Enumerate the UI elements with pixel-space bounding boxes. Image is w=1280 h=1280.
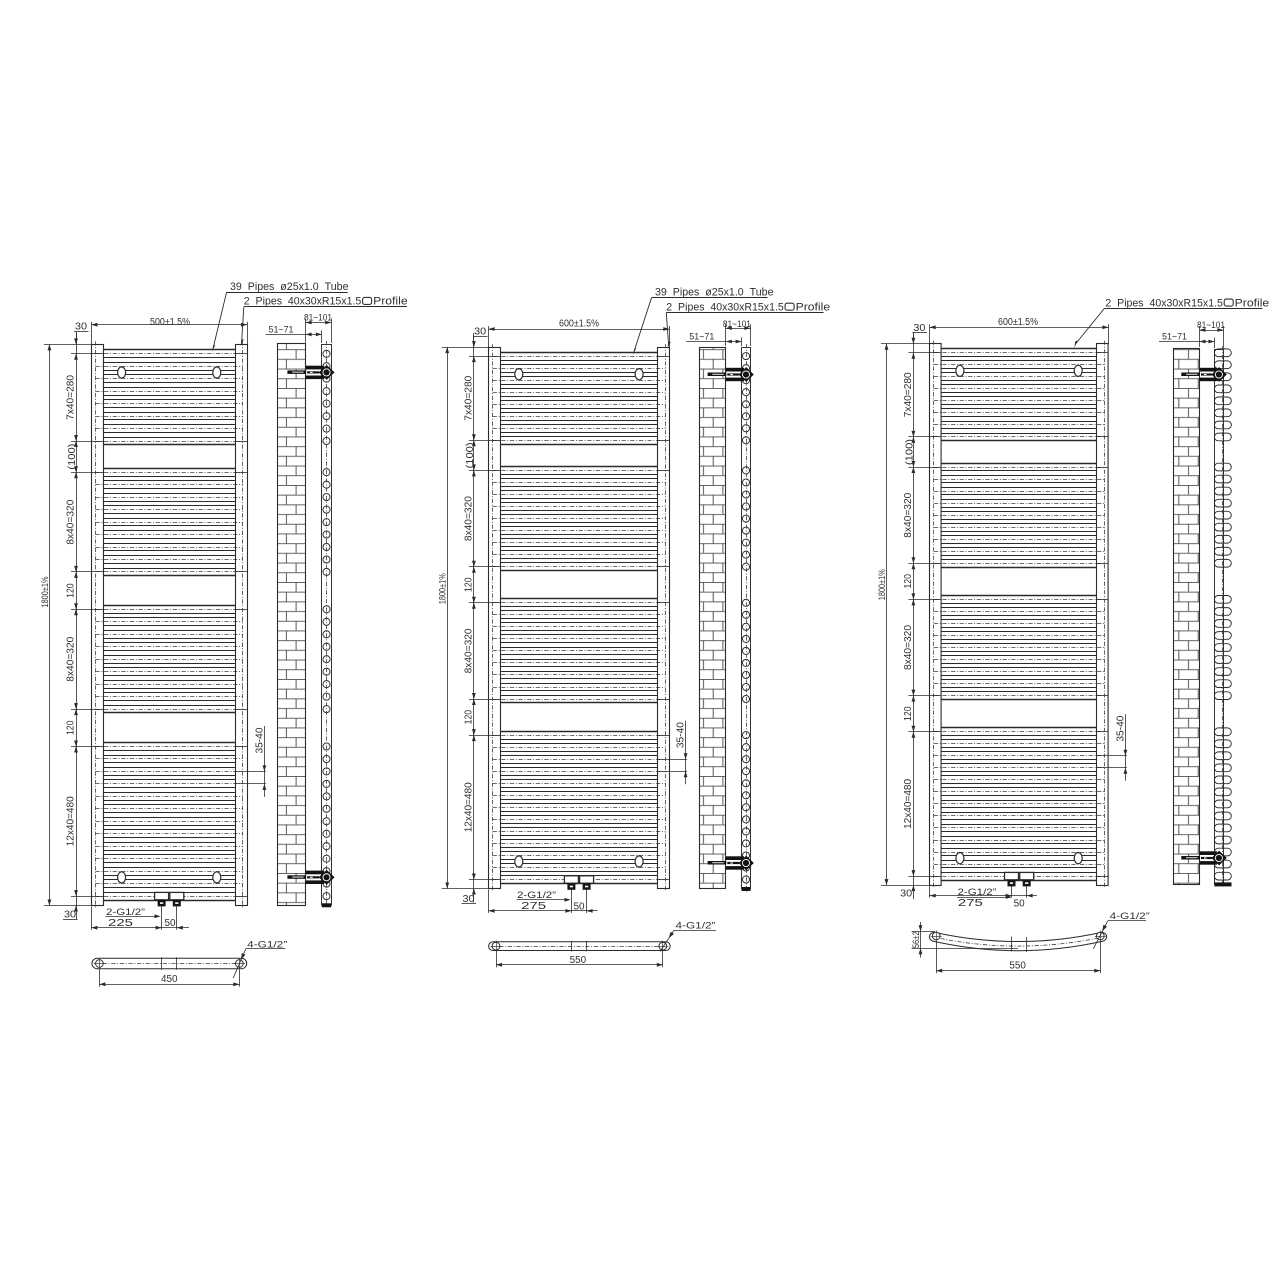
svg-text:(100): (100) bbox=[67, 444, 78, 470]
svg-text:35-40: 35-40 bbox=[254, 727, 265, 753]
svg-text:4-G1/2”: 4-G1/2” bbox=[676, 920, 716, 931]
svg-text:Profile: Profile bbox=[796, 301, 831, 313]
svg-text:1800±1%: 1800±1% bbox=[438, 573, 448, 604]
svg-text:Profile: Profile bbox=[1235, 297, 1270, 309]
svg-text:120: 120 bbox=[66, 583, 77, 598]
svg-text:120: 120 bbox=[464, 709, 475, 724]
svg-text:35-40: 35-40 bbox=[1116, 715, 1127, 741]
svg-text:550: 550 bbox=[570, 955, 587, 966]
svg-text:Profile: Profile bbox=[373, 296, 408, 308]
svg-text:50: 50 bbox=[574, 902, 585, 913]
svg-text:120: 120 bbox=[903, 574, 914, 589]
svg-text:2 Pipes 40x30xR15x1.5: 2 Pipes 40x30xR15x1.5 bbox=[666, 301, 784, 313]
svg-text:500±1.5%: 500±1.5% bbox=[150, 317, 190, 328]
svg-text:600±1.5%: 600±1.5% bbox=[998, 317, 1038, 328]
svg-text:8x40=320: 8x40=320 bbox=[66, 636, 77, 681]
svg-text:30: 30 bbox=[474, 327, 486, 338]
svg-text:550: 550 bbox=[1009, 960, 1026, 971]
svg-text:120: 120 bbox=[66, 720, 77, 735]
svg-text:7x40=280: 7x40=280 bbox=[464, 375, 475, 420]
svg-text:450: 450 bbox=[161, 974, 178, 985]
svg-text:8x40=320: 8x40=320 bbox=[903, 492, 914, 537]
svg-text:30: 30 bbox=[75, 322, 87, 333]
svg-text:2 Pipes 40x30xR15x1.5: 2 Pipes 40x30xR15x1.5 bbox=[1105, 297, 1223, 309]
svg-text:50: 50 bbox=[165, 918, 176, 929]
svg-text:30: 30 bbox=[900, 888, 912, 899]
svg-text:(100): (100) bbox=[905, 439, 916, 465]
svg-text:2 Pipes 40x30xR15x1.5: 2 Pipes 40x30xR15x1.5 bbox=[244, 296, 361, 308]
svg-text:8x40=320: 8x40=320 bbox=[464, 628, 475, 673]
svg-text:120: 120 bbox=[903, 706, 914, 721]
svg-text:39 Pipes ø25x1.0 Tube: 39 Pipes ø25x1.0 Tube bbox=[230, 281, 349, 293]
svg-text:12x40=480: 12x40=480 bbox=[903, 778, 914, 828]
svg-text:7x40=280: 7x40=280 bbox=[903, 372, 914, 417]
svg-text:7x40=280: 7x40=280 bbox=[66, 374, 77, 419]
svg-text:8x40=320: 8x40=320 bbox=[464, 496, 475, 541]
svg-text:51~71: 51~71 bbox=[269, 324, 294, 335]
svg-text:275: 275 bbox=[521, 901, 547, 912]
svg-text:2-G1/2”: 2-G1/2” bbox=[958, 887, 997, 898]
svg-text:56±2: 56±2 bbox=[911, 931, 921, 948]
svg-text:600±1.5%: 600±1.5% bbox=[559, 319, 599, 330]
svg-text:39 Pipes ø25x1.0 Tube: 39 Pipes ø25x1.0 Tube bbox=[655, 287, 774, 299]
svg-text:50: 50 bbox=[1014, 899, 1025, 910]
svg-text:12x40=480: 12x40=480 bbox=[66, 796, 77, 846]
svg-text:120: 120 bbox=[464, 577, 475, 592]
svg-text:8x40=320: 8x40=320 bbox=[66, 499, 77, 544]
svg-text:8x40=320: 8x40=320 bbox=[903, 625, 914, 670]
svg-text:1800±1%: 1800±1% bbox=[877, 569, 887, 600]
svg-text:225: 225 bbox=[108, 918, 134, 929]
svg-text:12x40=480: 12x40=480 bbox=[464, 782, 475, 832]
svg-text:35-40: 35-40 bbox=[676, 722, 687, 748]
svg-text:275: 275 bbox=[958, 898, 984, 909]
svg-text:51~71: 51~71 bbox=[689, 331, 714, 342]
svg-text:(100): (100) bbox=[465, 442, 476, 468]
svg-text:51~71: 51~71 bbox=[1162, 331, 1187, 342]
svg-text:1800±1%: 1800±1% bbox=[40, 577, 50, 608]
